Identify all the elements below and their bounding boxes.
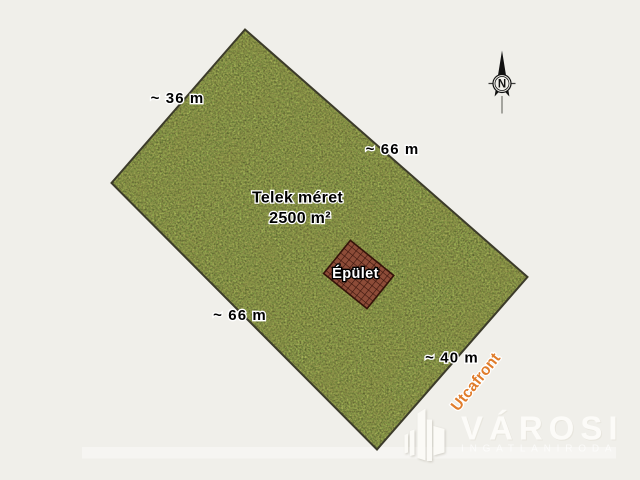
svg-text:Épület: Épület xyxy=(332,265,379,282)
svg-text:2500 m²: 2500 m² xyxy=(269,210,331,227)
svg-text:~ 66 m: ~ 66 m xyxy=(213,307,267,324)
svg-text:~ 36 m: ~ 36 m xyxy=(151,90,205,107)
svg-text:VÁROSI: VÁROSI xyxy=(461,410,624,447)
svg-text:Telek méret: Telek méret xyxy=(252,190,343,207)
svg-text:N: N xyxy=(498,79,506,91)
svg-text:INGATLANIRODA: INGATLANIRODA xyxy=(461,443,617,454)
svg-text:~ 66 m: ~ 66 m xyxy=(366,141,420,158)
svg-text:~ 40 m: ~ 40 m xyxy=(425,350,479,367)
